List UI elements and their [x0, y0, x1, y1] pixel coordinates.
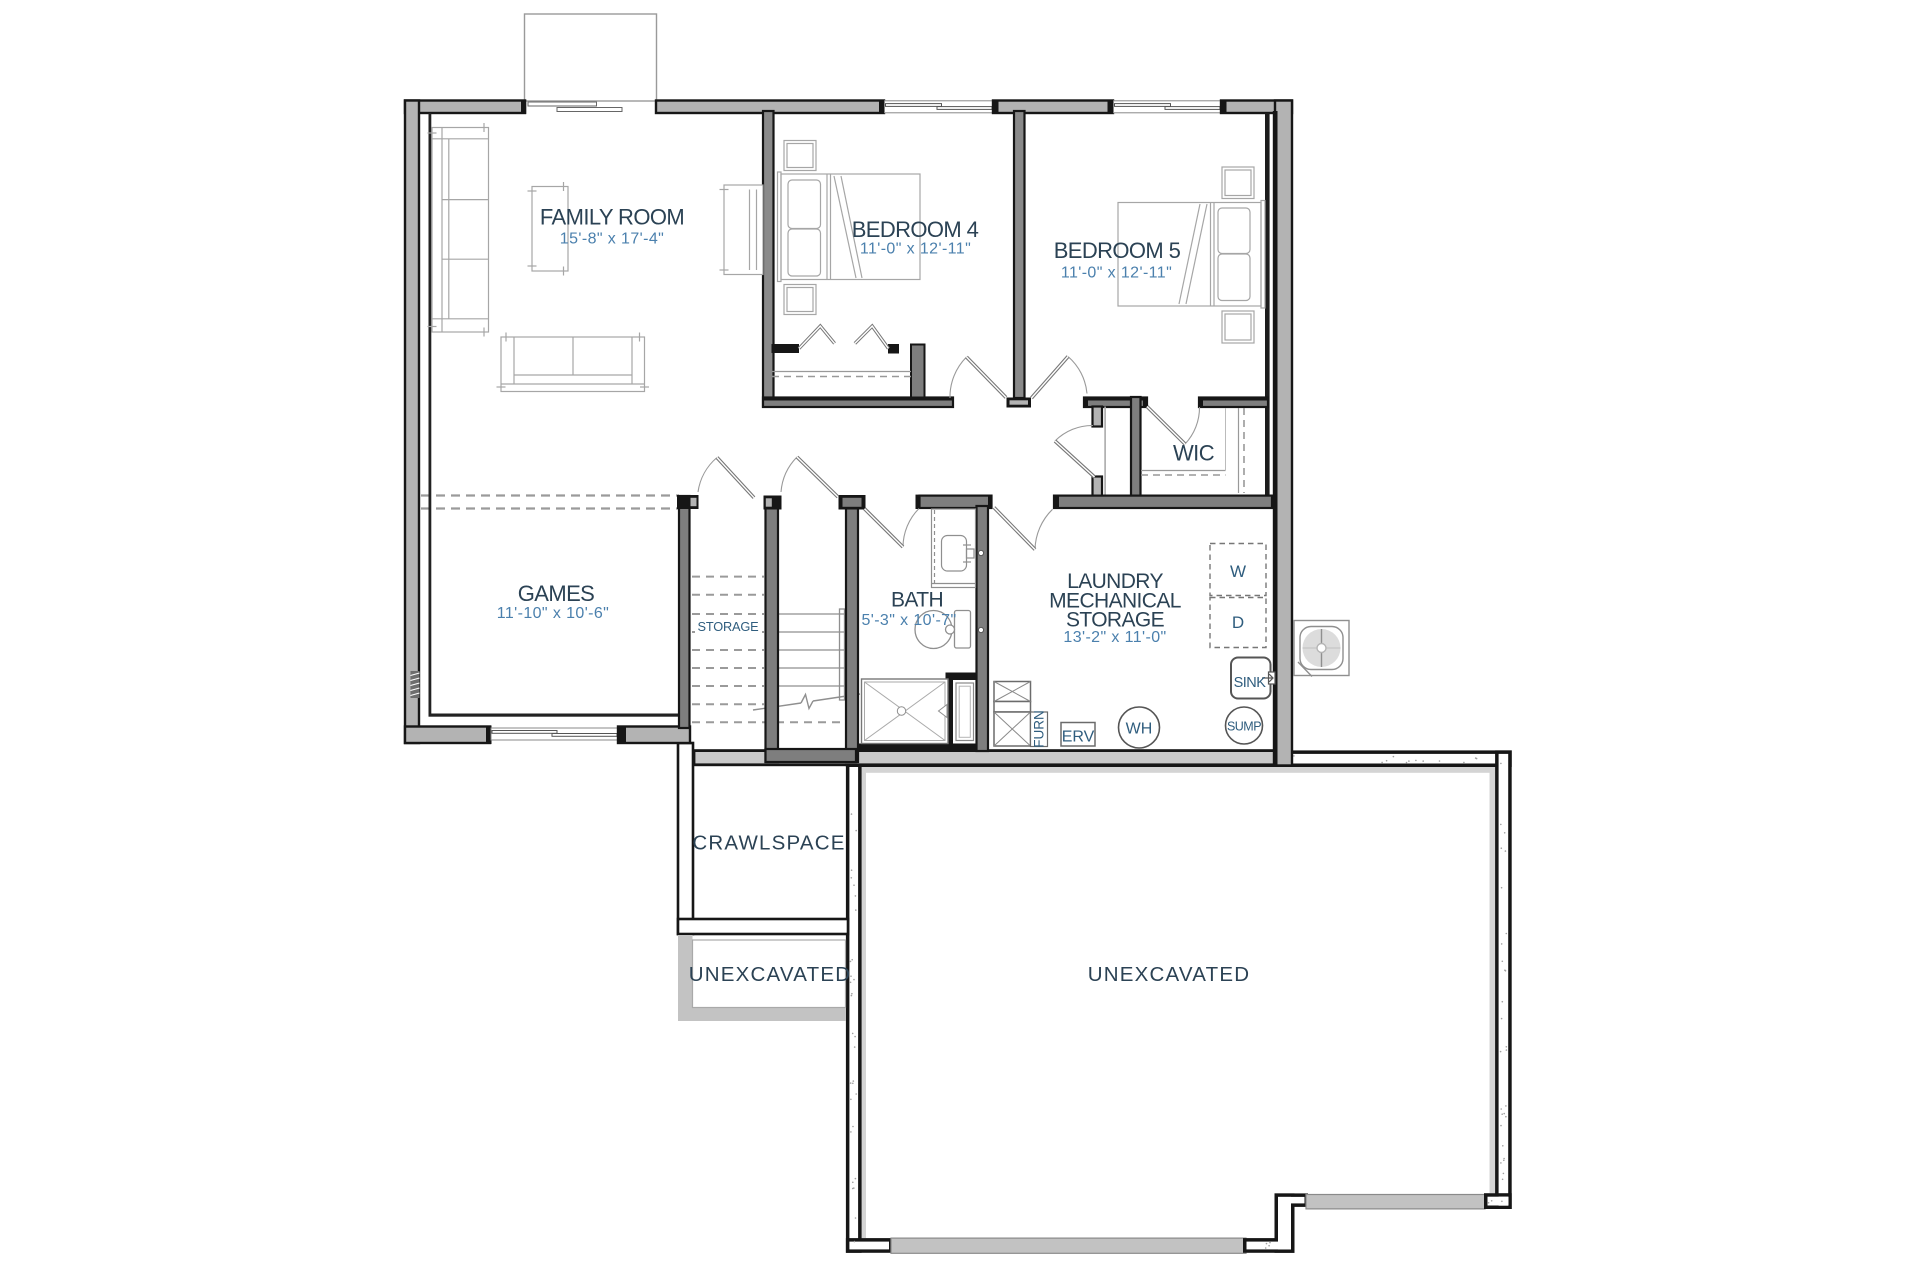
svg-text:FAMILY ROOM: FAMILY ROOM	[540, 205, 684, 230]
svg-text:WH: WH	[1126, 721, 1153, 738]
svg-text:15'-8" x 17'-4": 15'-8" x 17'-4"	[560, 231, 664, 248]
svg-text:UNEXCAVATED: UNEXCAVATED	[1088, 963, 1250, 986]
svg-text:CRAWLSPACE: CRAWLSPACE	[692, 832, 845, 855]
svg-text:WIC: WIC	[1173, 441, 1215, 466]
svg-text:11'-10" x 10'-6": 11'-10" x 10'-6"	[497, 605, 610, 622]
svg-text:SINK: SINK	[1234, 675, 1267, 691]
svg-text:BATH: BATH	[891, 589, 943, 612]
svg-text:BEDROOM 4: BEDROOM 4	[852, 217, 979, 242]
svg-text:BEDROOM 5: BEDROOM 5	[1054, 238, 1181, 263]
svg-text:13'-2" x 11'-0": 13'-2" x 11'-0"	[1063, 629, 1166, 646]
svg-text:SUMP: SUMP	[1227, 720, 1261, 734]
svg-text:GAMES: GAMES	[518, 581, 594, 606]
svg-text:ERV: ERV	[1062, 729, 1095, 746]
svg-text:11'-0" x 12'-11": 11'-0" x 12'-11"	[860, 241, 971, 258]
svg-text:UNEXCAVATED: UNEXCAVATED	[689, 963, 851, 986]
svg-text:5'-3" x 10'-7": 5'-3" x 10'-7"	[861, 612, 956, 629]
svg-text:STORAGE: STORAGE	[698, 619, 759, 634]
svg-text:11'-0" x 12'-11": 11'-0" x 12'-11"	[1061, 265, 1172, 282]
svg-text:D: D	[1232, 613, 1244, 632]
svg-text:FURN: FURN	[1032, 710, 1047, 748]
svg-text:W: W	[1230, 562, 1246, 581]
